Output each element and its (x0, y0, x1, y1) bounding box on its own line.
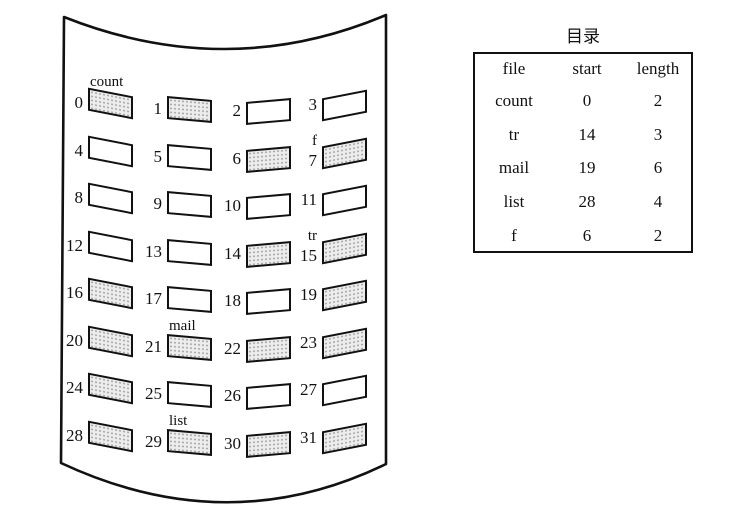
block-number-22: 22 (211, 340, 241, 358)
disk-block-1 (167, 96, 212, 123)
table-cell-length: 2 (621, 84, 695, 118)
contiguous-allocation-figure: 0count1234567f89101112131415tr1617181920… (0, 0, 735, 529)
table-cell-file: f (475, 219, 553, 253)
disk-block-25 (167, 381, 212, 408)
block-number-25: 25 (132, 385, 162, 403)
block-number-10: 10 (211, 197, 241, 215)
block-number-31: 31 (287, 429, 317, 447)
disk-block-14 (246, 241, 291, 268)
block-number-26: 26 (211, 387, 241, 405)
table-cell-length: 3 (621, 118, 695, 152)
table-cell-file: count (475, 84, 553, 118)
block-number-4: 4 (53, 142, 83, 160)
column-header-file: file (475, 54, 553, 84)
column-header-start: start (553, 54, 621, 84)
block-number-20: 20 (53, 332, 83, 350)
block-number-28: 28 (53, 427, 83, 445)
file-label-mail: mail (169, 319, 196, 333)
disk-block-29 (167, 429, 212, 456)
block-number-17: 17 (132, 290, 162, 308)
table-cell-start: 19 (553, 152, 621, 186)
block-number-1: 1 (132, 100, 162, 118)
disk-block-22 (246, 336, 291, 363)
table-cell-length: 6 (621, 152, 695, 186)
block-number-0: 0 (53, 94, 83, 112)
block-number-18: 18 (211, 292, 241, 310)
block-number-21: 21 (132, 338, 162, 356)
table-cell-file: mail (475, 152, 553, 186)
block-number-9: 9 (132, 195, 162, 213)
file-label-count: count (90, 75, 123, 89)
file-label-tr: tr (287, 229, 317, 243)
directory-table-title: 目录 (473, 22, 693, 47)
disk-surface: 0count1234567f89101112131415tr1617181920… (0, 0, 440, 529)
block-number-16: 16 (53, 284, 83, 302)
disk-block-9 (167, 191, 212, 218)
block-number-8: 8 (53, 189, 83, 207)
block-number-12: 12 (53, 237, 83, 255)
disk-block-30 (246, 431, 291, 458)
block-number-23: 23 (287, 334, 317, 352)
disk-block-26 (246, 383, 291, 410)
block-number-14: 14 (211, 245, 241, 263)
disk-block-21 (167, 334, 212, 361)
block-number-24: 24 (53, 379, 83, 397)
block-number-11: 11 (287, 191, 317, 209)
block-number-3: 3 (287, 96, 317, 114)
table-cell-start: 14 (553, 118, 621, 152)
disk-block-2 (246, 98, 291, 125)
disk-block-18 (246, 288, 291, 315)
block-number-15: 15 (287, 247, 317, 265)
block-number-27: 27 (287, 381, 317, 399)
table-cell-start: 0 (553, 84, 621, 118)
block-number-29: 29 (132, 433, 162, 451)
table-cell-start: 28 (553, 185, 621, 219)
column-header-length: length (621, 54, 695, 84)
disk-block-5 (167, 144, 212, 171)
disk-block-6 (246, 146, 291, 173)
table-cell-length: 4 (621, 185, 695, 219)
block-number-7: 7 (287, 152, 317, 170)
file-label-list: list (169, 414, 187, 428)
disk-block-17 (167, 286, 212, 313)
table-cell-file: list (475, 185, 553, 219)
table-cell-start: 6 (553, 219, 621, 253)
table-cell-length: 2 (621, 219, 695, 253)
table-cell-file: tr (475, 118, 553, 152)
block-number-13: 13 (132, 243, 162, 261)
block-number-2: 2 (211, 102, 241, 120)
block-number-30: 30 (211, 435, 241, 453)
file-label-f: f (287, 134, 317, 148)
disk-block-10 (246, 193, 291, 220)
directory-table: file start length count 0 2 tr 14 3 mail… (473, 52, 693, 253)
block-number-6: 6 (211, 150, 241, 168)
block-number-19: 19 (287, 286, 317, 304)
disk-block-13 (167, 239, 212, 266)
block-number-5: 5 (132, 148, 162, 166)
